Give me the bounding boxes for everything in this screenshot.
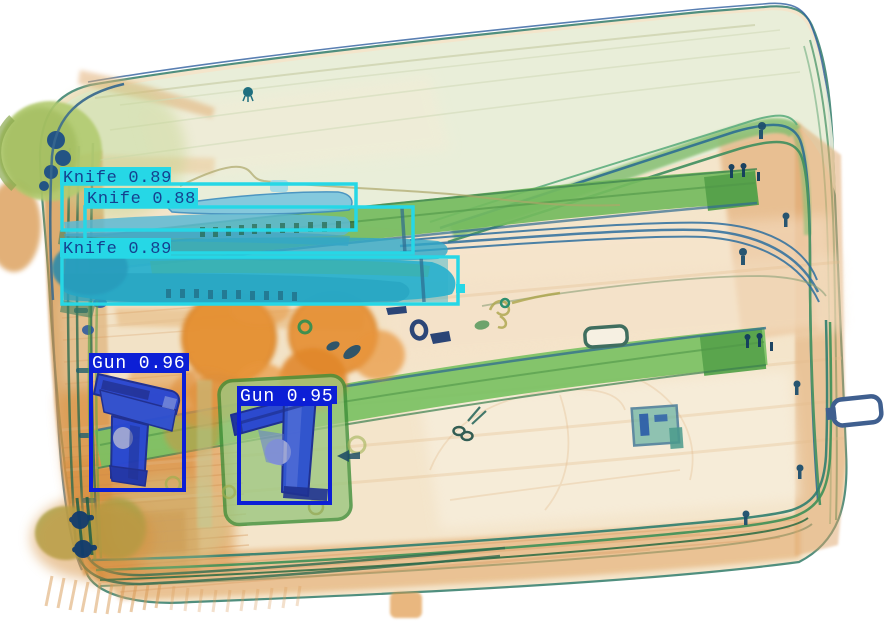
svg-text:Gun 0.96: Gun 0.96 [92,354,186,374]
svg-text:Knife 0.89: Knife 0.89 [63,169,172,188]
svg-text:Gun 0.95: Gun 0.95 [240,387,334,407]
svg-text:Knife 0.89: Knife 0.89 [63,240,172,259]
svg-text:Knife 0.88: Knife 0.88 [87,190,196,209]
